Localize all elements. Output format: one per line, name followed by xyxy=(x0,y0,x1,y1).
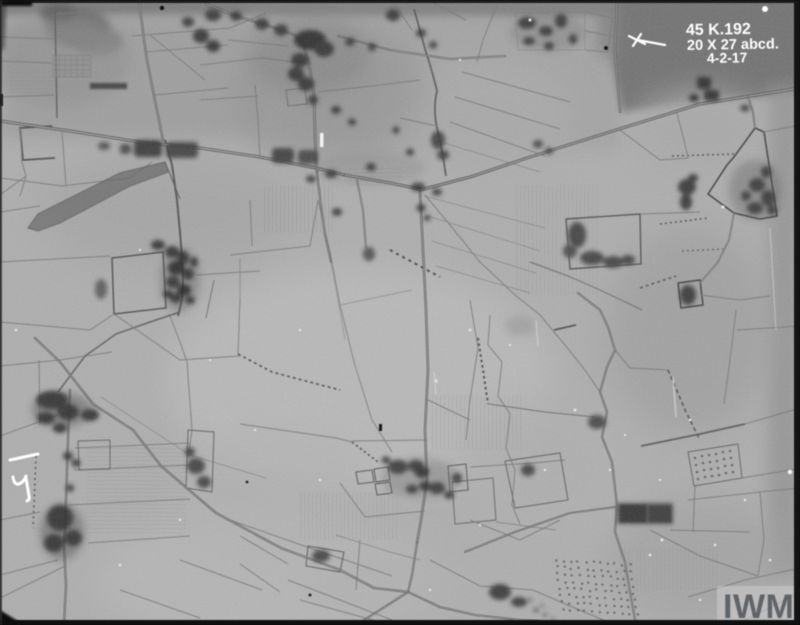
svg-text:4-2-17: 4-2-17 xyxy=(707,49,748,66)
svg-text:IWM: IWM xyxy=(723,588,794,625)
